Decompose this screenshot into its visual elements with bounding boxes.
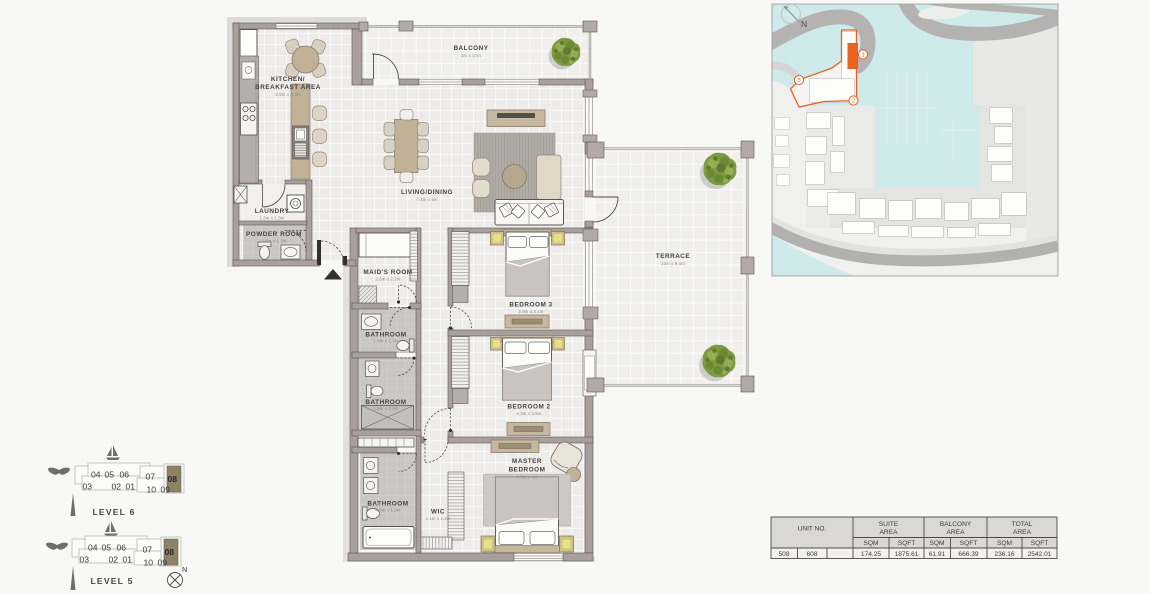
- svg-text:BEDROOM: BEDROOM: [509, 467, 546, 474]
- svg-text:4.1m x 2.2m: 4.1m x 2.2m: [425, 516, 451, 521]
- svg-text:7.4m x 5m: 7.4m x 5m: [416, 197, 438, 202]
- svg-text:03: 03: [83, 482, 93, 492]
- svg-text:BATHROOM: BATHROOM: [367, 501, 408, 508]
- svg-text:LEVEL 5: LEVEL 5: [90, 576, 133, 586]
- svg-text:4.6m x 1.8m: 4.6m x 1.8m: [375, 508, 401, 513]
- svg-text:SQM: SQM: [997, 540, 1012, 547]
- svg-text:SUITE: SUITE: [879, 521, 899, 528]
- svg-text:AREA: AREA: [947, 529, 966, 536]
- svg-text:174.25: 174.25: [861, 551, 882, 558]
- svg-text:2: 2: [852, 99, 855, 105]
- svg-text:2.6m x 2.2m: 2.6m x 2.2m: [375, 277, 401, 282]
- svg-text:236.16: 236.16: [994, 551, 1015, 558]
- svg-text:09: 09: [158, 558, 168, 568]
- svg-text:07: 07: [143, 545, 153, 555]
- svg-text:SQM: SQM: [929, 540, 944, 547]
- svg-text:608: 608: [806, 551, 817, 558]
- svg-text:1875.61: 1875.61: [895, 551, 919, 558]
- svg-text:SQFT: SQFT: [1031, 540, 1049, 547]
- svg-text:BREAKFAST AREA: BREAKFAST AREA: [255, 84, 321, 91]
- svg-text:N: N: [801, 19, 807, 29]
- svg-text:06: 06: [117, 543, 127, 553]
- svg-text:666.39: 666.39: [958, 551, 979, 558]
- svg-text:AREA: AREA: [1013, 529, 1032, 536]
- svg-text:BATHROOM: BATHROOM: [365, 399, 406, 406]
- svg-text:BEDROOM 3: BEDROOM 3: [509, 302, 552, 309]
- svg-text:KITCHEN/: KITCHEN/: [271, 76, 305, 83]
- svg-text:4.3m x 4m: 4.3m x 4m: [516, 475, 538, 480]
- svg-text:LAUNDRY: LAUNDRY: [255, 208, 290, 215]
- svg-text:05: 05: [102, 543, 112, 553]
- svg-text:02: 02: [109, 555, 119, 565]
- svg-text:08: 08: [168, 474, 178, 484]
- svg-text:12m x 9.4m: 12m x 9.4m: [661, 261, 685, 266]
- svg-text:3.9m x 3.1m: 3.9m x 3.1m: [518, 309, 544, 314]
- svg-text:N: N: [182, 565, 187, 574]
- svg-text:MAID'S ROOM: MAID'S ROOM: [363, 269, 412, 276]
- svg-text:1: 1: [861, 53, 864, 59]
- svg-text:01: 01: [126, 482, 136, 492]
- svg-text:10: 10: [147, 485, 157, 495]
- svg-text:07: 07: [146, 472, 156, 482]
- svg-text:LIVING/DINING: LIVING/DINING: [401, 189, 453, 196]
- svg-text:POWDER ROOM: POWDER ROOM: [246, 231, 302, 238]
- svg-text:MASTER: MASTER: [512, 458, 542, 465]
- svg-text:3m x 17m: 3m x 17m: [461, 53, 481, 58]
- svg-text:10: 10: [144, 558, 154, 568]
- svg-text:LEVEL 6: LEVEL 6: [92, 507, 135, 517]
- svg-text:2542.01: 2542.01: [1028, 551, 1052, 558]
- svg-text:3: 3: [797, 78, 800, 84]
- svg-text:1.8m x 1.3m: 1.8m x 1.3m: [261, 239, 287, 244]
- svg-text:508: 508: [778, 551, 789, 558]
- svg-text:01: 01: [123, 555, 133, 565]
- svg-text:3.9m x 3.4m: 3.9m x 3.4m: [275, 92, 301, 97]
- svg-text:04: 04: [91, 470, 101, 480]
- svg-text:1.8m x 1.7m: 1.8m x 1.7m: [373, 339, 399, 344]
- svg-text:AREA: AREA: [880, 529, 899, 536]
- svg-text:BALCONY: BALCONY: [940, 521, 972, 528]
- svg-text:BALCONY: BALCONY: [453, 45, 488, 52]
- svg-text:BATHROOM: BATHROOM: [365, 332, 406, 339]
- svg-text:1.3m x 1.3m: 1.3m x 1.3m: [259, 216, 285, 221]
- svg-text:BEDROOM 2: BEDROOM 2: [507, 404, 550, 411]
- svg-text:04: 04: [88, 543, 98, 553]
- svg-text:05: 05: [105, 470, 115, 480]
- svg-text:WIC: WIC: [431, 509, 445, 516]
- svg-text:1.8m x 2.9m: 1.8m x 2.9m: [373, 406, 399, 411]
- svg-text:08: 08: [165, 547, 175, 557]
- svg-text:UNIT NO.: UNIT NO.: [798, 526, 827, 533]
- svg-text:09: 09: [161, 485, 171, 495]
- svg-text:SQFT: SQFT: [898, 540, 916, 547]
- svg-text:06: 06: [120, 470, 130, 480]
- svg-text:4.3m x 3.6m: 4.3m x 3.6m: [516, 411, 542, 416]
- svg-text:SQM: SQM: [863, 540, 878, 547]
- svg-text:TERRACE: TERRACE: [656, 253, 691, 260]
- svg-text:02: 02: [112, 482, 122, 492]
- svg-text:61.91: 61.91: [929, 551, 946, 558]
- svg-text:SQFT: SQFT: [960, 540, 978, 547]
- svg-text:TOTAL: TOTAL: [1012, 521, 1033, 528]
- svg-text:03: 03: [80, 555, 90, 565]
